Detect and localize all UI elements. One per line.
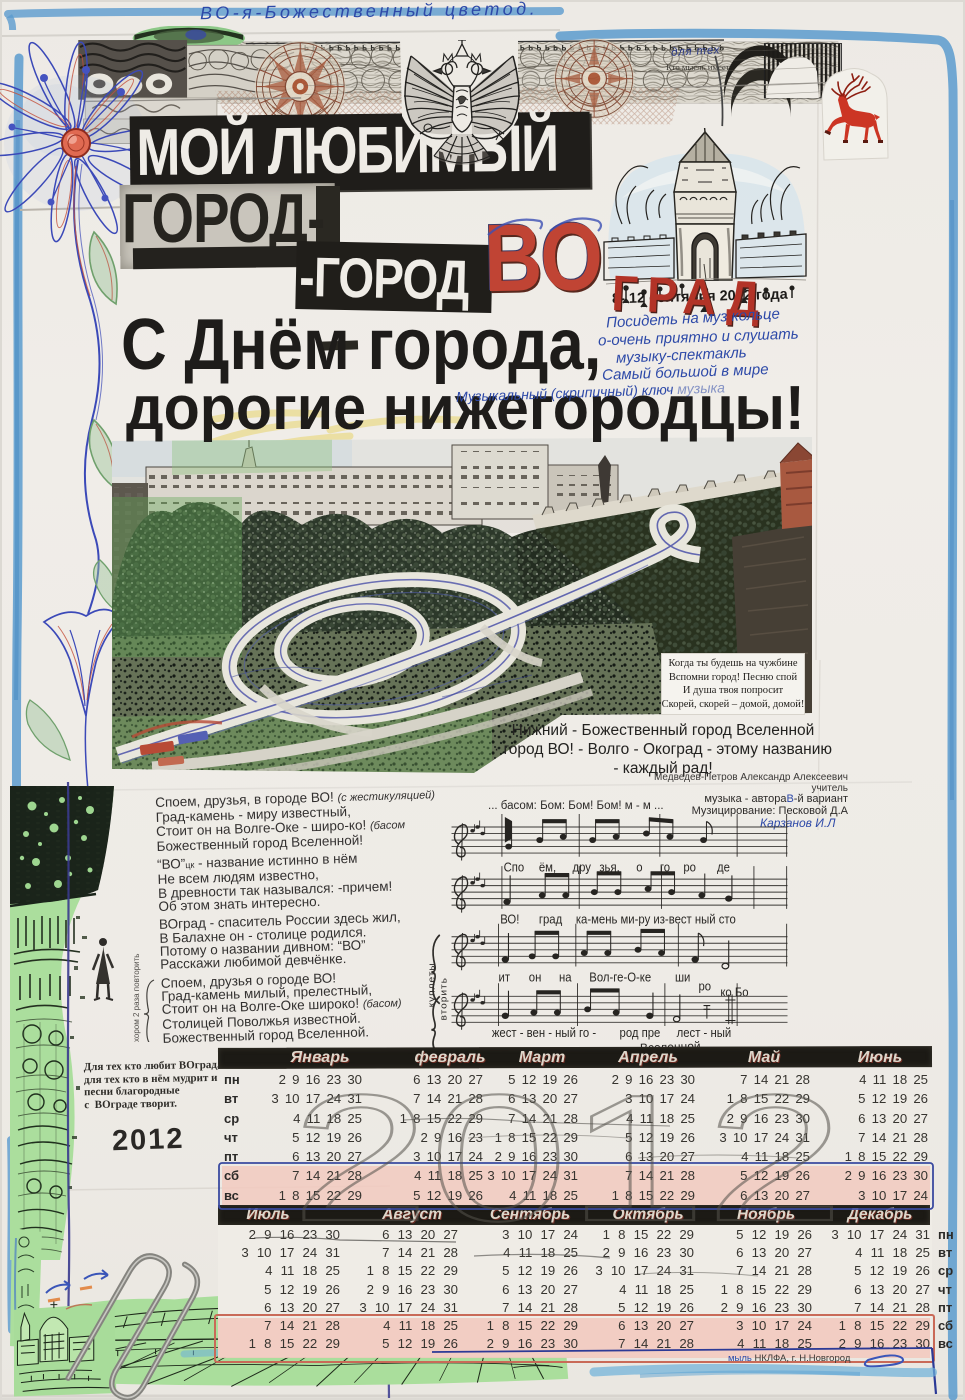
svg-text:Вол-ге-О-ке: Вол-ге-О-ке xyxy=(589,970,651,985)
svg-text:2012: 2012 xyxy=(291,1060,844,1258)
svg-text:лест - ный: лест - ный xyxy=(677,1026,732,1041)
svg-text:ка-мень ми-ру из-вест ный сто: ка-мень ми-ру из-вест ный сто xyxy=(576,912,736,927)
svg-text:вторить: вторить xyxy=(439,977,449,1020)
svg-text:дру: дру xyxy=(572,860,590,875)
svg-text:Спо: Спо xyxy=(504,860,525,875)
svg-text:ко Бо: ко Бо xyxy=(720,985,749,1000)
svg-text:жест - вен - ный го -: жест - вен - ный го - xyxy=(492,1026,596,1041)
svg-text:ём,: ём, xyxy=(539,860,556,875)
svg-text:род пре: род пре xyxy=(620,1026,661,1041)
svg-text:ро: ро xyxy=(683,860,696,875)
svg-text:ВО!: ВО! xyxy=(500,912,519,927)
svg-text:ши: ши xyxy=(675,970,690,985)
svg-text:куплеты: куплеты xyxy=(427,962,437,1007)
svg-text:ит: ит xyxy=(499,970,511,985)
svg-text:о: о xyxy=(636,860,643,875)
svg-text:ро: ро xyxy=(698,979,711,994)
svg-text:град: град xyxy=(539,912,562,927)
svg-text:на: на xyxy=(559,970,572,985)
svg-text:де: де xyxy=(717,860,730,875)
svg-text:он: он xyxy=(529,970,542,985)
